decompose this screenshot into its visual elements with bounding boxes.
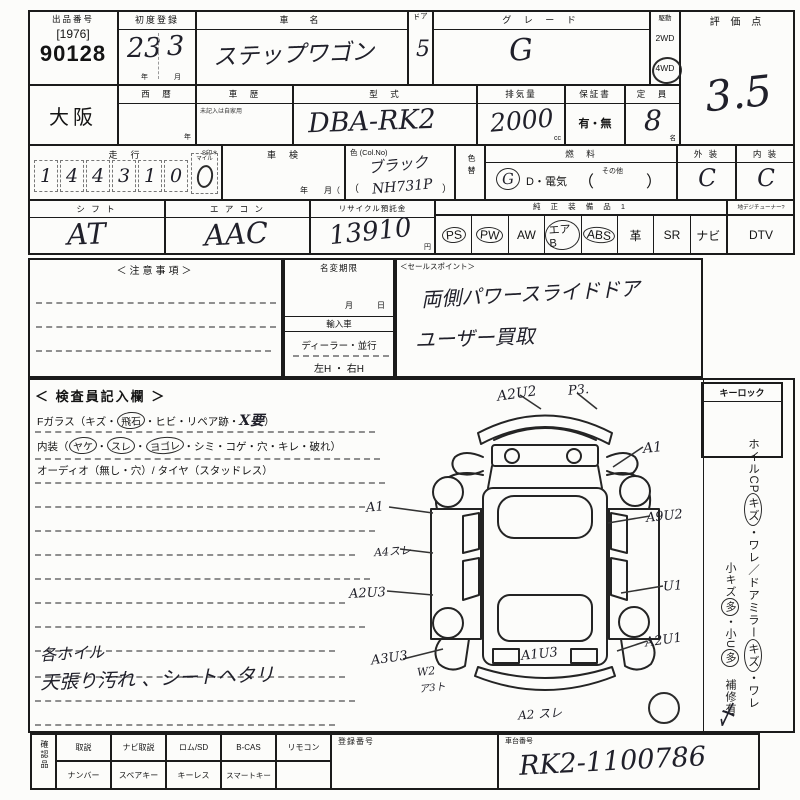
history-note: 未記入は自家用: [197, 104, 292, 115]
equipment-header: 純 正 装 備 品 1: [435, 200, 727, 215]
drive-2wd: 2WD: [651, 33, 679, 43]
recycle-label: リサイクル預託金: [311, 201, 434, 218]
door-cell: ドア 5: [408, 10, 433, 85]
first-registration-label: 初度登録: [119, 11, 195, 30]
dashed-line: [36, 350, 271, 352]
footer-bcas: B-CAS: [221, 733, 276, 761]
history-cell: 車 歴 未記入は自家用: [196, 85, 293, 145]
capacity-cell: 定 員 8 名: [625, 85, 680, 145]
damage-code: A2U3: [349, 585, 387, 602]
aircon-cell: エ ア コ ン AAC: [165, 200, 310, 255]
circled-kizu: キズ: [744, 639, 762, 672]
sales-point-box: ＜セールスポイント＞ 両側パワースライドドア ユーザー買取: [395, 258, 703, 378]
dashed-line: [35, 626, 365, 628]
model-cell: 型 式 DBA-RK2: [293, 85, 477, 145]
hand-x-required: X要: [239, 413, 264, 429]
shift-cell: シ フ ト AT: [28, 200, 165, 255]
footer-empty-cell: [276, 761, 331, 790]
fuel-other: その他: [602, 166, 623, 176]
damage-code: P3.: [567, 382, 589, 399]
fuel-gasoline: G: [495, 167, 520, 191]
dashed-line: [35, 530, 375, 532]
odometer-digit: 1: [138, 160, 162, 192]
fuel-label: 燃 料: [486, 146, 676, 163]
fuel-paren-open: （: [578, 168, 594, 192]
recycle-value: 13910: [328, 213, 413, 251]
score-label: 評 価 点: [681, 11, 794, 28]
lot-cell: 出品番号 [1976] 90128: [28, 10, 118, 85]
circled-kizu: キズ: [744, 493, 762, 526]
recycle-cell: リサイクル預託金 13910 円: [310, 200, 435, 255]
footer-side-cell: 確認品: [30, 733, 56, 790]
odometer-digit: 0: [164, 160, 188, 192]
mile-label: マイル: [196, 154, 213, 162]
capacity-value: 8: [644, 104, 662, 137]
color-change-cell: 色替: [455, 145, 485, 200]
mile-unit-box: マイル: [191, 153, 218, 194]
fuel-paren-close: ）: [646, 168, 662, 192]
circled-many: 多: [721, 649, 739, 667]
door-label: ドア: [408, 9, 432, 23]
hand-mark-mile: [195, 164, 215, 189]
seireki-label: 西 暦: [119, 86, 195, 104]
capacity-unit: 名: [670, 132, 677, 142]
score-cell: 評 価 点 3.5: [680, 10, 795, 145]
odometer-digit: 4: [60, 160, 84, 192]
shaken-label: 車 検: [223, 146, 344, 161]
import-label: 輸入車: [285, 317, 393, 332]
seireki-cell: 西 暦 年: [118, 85, 196, 145]
displacement-value: 2000: [489, 103, 555, 137]
drive-cell: 駆動 2WD 4WD: [650, 10, 680, 85]
name-change-box: 名変期限 月 日 輸入車 ディーラー・並行 左H ・ 右H: [283, 258, 395, 378]
warranty-value: 有・無: [566, 104, 624, 142]
equip-airbag: エアB: [545, 216, 581, 254]
damage-code: A1: [365, 499, 384, 515]
lot-bracket: [1976]: [29, 27, 117, 41]
stamp-wheel-mirror: ホイルCPキズ・ワレ／ドアミラーキズ・ワレ: [744, 438, 762, 736]
dashed-line: [35, 431, 375, 433]
color-change-label: 色替: [466, 154, 477, 178]
registration-label: 登録番号: [332, 734, 497, 747]
footer-smart-key: スマートキー: [221, 761, 276, 790]
hand-circle-4wd: [651, 56, 684, 86]
equip-navi: ナビ: [691, 216, 726, 254]
circled-tobiishi: 飛石: [116, 411, 145, 430]
sales-line1: 両側パワースライドドア: [420, 272, 640, 312]
history-label: 車 歴: [197, 86, 292, 104]
inspector-line1: Fガラス（キズ・飛石・ヒビ・リペア跡・X要）: [37, 410, 275, 430]
car-name-label: 車 名: [197, 11, 407, 30]
import-type: ディーラー・並行: [285, 338, 393, 352]
footer-spare-key: スペアキー: [111, 761, 166, 790]
dtv-header: 地デジチューナー?: [727, 200, 795, 215]
footer-number-plate: ナンバー: [56, 761, 111, 790]
damage-code: A2 スレ: [517, 703, 562, 723]
equip-aw: AW: [509, 216, 545, 254]
footer-keyless: キーレス: [166, 761, 221, 790]
color-paren-close: ）: [442, 180, 452, 195]
equip-leather: 革: [618, 216, 654, 254]
shift-label: シ フ ト: [29, 201, 164, 218]
exterior-label: 外 装: [678, 146, 735, 163]
shift-value: AT: [66, 216, 106, 251]
dashed-line: [35, 554, 355, 556]
circled-many: 多: [721, 598, 739, 616]
month-unit: 月: [174, 72, 181, 82]
caution-label: ＜注意事項＞: [30, 260, 281, 277]
region-value: 大阪: [29, 86, 117, 144]
footer-navi-manual: ナビ取説: [111, 733, 166, 761]
car-name-cell: 車 名 ステップワゴン: [196, 10, 408, 85]
dashed-line: [36, 302, 276, 304]
name-change-label: 名変期限: [285, 260, 393, 274]
exterior-cell: 外 装 C: [677, 145, 736, 200]
dashed-line: [35, 724, 335, 726]
damage-code: A4スレ: [373, 542, 411, 561]
interior-cell: 内 装 C: [736, 145, 795, 200]
equip-ps: PS: [436, 216, 472, 254]
exterior-value: C: [697, 163, 717, 192]
warranty-cell: 保証書 有・無: [565, 85, 625, 145]
aircon-value: AAC: [203, 215, 269, 252]
inspector-line2: 内装（ヤケ・スレ・ヨゴレ・シミ・コゲ・穴・キレ・破れ）: [37, 437, 341, 454]
displacement-cell: 排気量 2000 cc: [477, 85, 565, 145]
sales-line2: ユーザー買取: [415, 320, 536, 353]
fuel-cell: 燃 料 G D・電気 （ その他 ）: [485, 145, 677, 200]
displacement-label: 排気量: [478, 86, 564, 104]
handle-options: 左H ・ 右H: [285, 360, 393, 375]
aircon-label: エ ア コ ン: [166, 201, 309, 218]
color-cell: 色 (Col.No) ブラック （ NH731P ）: [345, 145, 455, 200]
circled-yogore: ヨゴレ: [145, 436, 184, 456]
first-reg-year: 23: [127, 33, 161, 64]
damage-code: U1: [663, 578, 683, 594]
odometer-digit: 1: [34, 160, 58, 192]
seireki-unit: 年: [184, 132, 191, 142]
footer-manual: 取説: [56, 733, 111, 761]
year-unit: 年: [141, 72, 148, 82]
keylock-label: キーロック: [703, 384, 781, 402]
equip-dtv: DTV: [727, 215, 795, 255]
dashed-line: [35, 700, 355, 702]
door-value: 5: [416, 37, 430, 62]
first-registration-cell: 初度登録 23 3 年 月: [118, 10, 196, 85]
equipment-row: PS PW AW エアB ABS 革 SR ナビ: [435, 215, 727, 255]
equip-abs: ABS: [582, 216, 618, 254]
score-value: 3.5: [703, 66, 775, 122]
dashed-line: [35, 506, 365, 508]
model-label: 型 式: [294, 86, 476, 104]
damage-code: W2: [416, 664, 436, 679]
shaken-ym: 年 月（: [300, 185, 340, 196]
hand-circle-mark: [648, 692, 680, 724]
car-name-value: ステップワゴン: [212, 32, 374, 72]
odometer-digit: 4: [86, 160, 110, 192]
displacement-unit: cc: [554, 135, 561, 142]
grade-cell: グ レ ー ド G: [433, 10, 650, 85]
dashed-line: [36, 326, 276, 328]
chassis-cell: 車台番号 RK2-1100786: [498, 733, 760, 790]
dashed-line: [35, 578, 370, 580]
warranty-label: 保証書: [566, 86, 624, 104]
divider: [158, 33, 159, 79]
footer-rom-sd: ロム/SD: [166, 733, 221, 761]
circled-yake: ヤケ: [68, 436, 97, 455]
region-cell: 大阪: [28, 85, 118, 145]
interior-value: C: [756, 163, 776, 192]
dashed-line: [35, 602, 345, 604]
recycle-unit: 円: [424, 242, 431, 252]
hand-note-wheels: 各ホイル: [39, 638, 104, 665]
fuel-rest: D・電気: [526, 173, 567, 189]
inspector-title: ＜ 検査員記入欄 ＞: [35, 386, 166, 405]
grade-label: グ レ ー ド: [434, 11, 649, 30]
dashed-line: [35, 482, 385, 484]
inspector-line3: オーディオ（無し・穴）/ タイヤ（スタッドレス）: [37, 463, 273, 478]
lot-label: 出品番号: [29, 11, 117, 25]
shaken-cell: 車 検 年 月（: [222, 145, 345, 200]
footer-remote: リモコン: [276, 733, 331, 761]
chassis-value: RK2-1100786: [518, 741, 706, 782]
keylock-box: キーロック: [701, 382, 783, 458]
odometer-digit: 3: [112, 160, 136, 192]
circled-sure: スレ: [107, 436, 136, 454]
lot-number: 90128: [29, 41, 117, 67]
caution-box: ＜注意事項＞: [28, 258, 283, 378]
color-number: NH731P: [371, 176, 433, 197]
grade-value: G: [508, 32, 534, 69]
drive-label: 駆動: [651, 11, 679, 22]
equip-sr: SR: [654, 216, 690, 254]
interior-label: 内 装: [737, 146, 794, 163]
dashed-line: [35, 458, 380, 460]
capacity-label: 定 員: [626, 86, 679, 104]
name-change-md: 月 日: [345, 300, 385, 311]
equip-pw: PW: [472, 216, 508, 254]
sales-point-label: ＜セールスポイント＞: [397, 260, 701, 272]
auction-sheet: 出品番号 [1976] 90128 初度登録 23 3 年 月 車 名 ステップ…: [0, 0, 800, 800]
model-value: DBA-RK2: [307, 104, 436, 139]
damage-code: ア3ト: [418, 678, 446, 696]
damage-code: A1: [642, 439, 662, 457]
first-reg-month: 3: [167, 31, 184, 62]
color-paren-open: （: [349, 180, 359, 195]
registration-cell: 登録番号: [331, 733, 498, 790]
dashed-line: [293, 355, 389, 357]
